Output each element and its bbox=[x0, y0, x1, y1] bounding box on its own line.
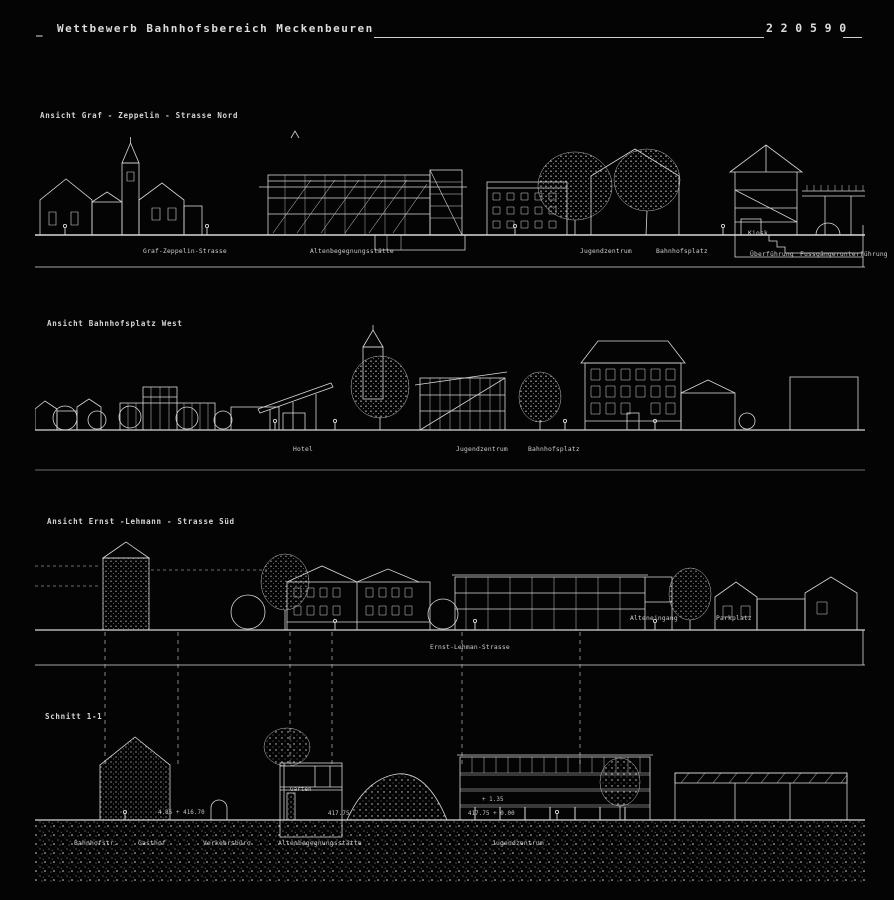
earth-mound bbox=[347, 774, 447, 820]
annotation-unterfuehrung: Fussgängerunterführung bbox=[800, 251, 888, 258]
left-houses bbox=[35, 399, 106, 430]
right-houses bbox=[715, 577, 857, 630]
annex-building bbox=[681, 380, 755, 430]
board-number: 2 2 0 5 9 0 bbox=[766, 21, 847, 35]
panel-label-elevation-west: Ansicht Bahnhofsplatz West bbox=[47, 319, 183, 328]
tree bbox=[264, 728, 310, 766]
long-low-building-section bbox=[675, 773, 847, 820]
tree bbox=[669, 568, 711, 620]
annotation-parkplatz: Parkplatz bbox=[716, 615, 752, 622]
glazed-hall-altenbegegnung bbox=[259, 170, 467, 250]
tree bbox=[351, 356, 409, 418]
title-underline bbox=[374, 37, 764, 38]
tower-section bbox=[100, 737, 170, 820]
elevation-mark: + 1.35 bbox=[482, 797, 504, 803]
section-1-1-drawing bbox=[35, 725, 865, 885]
dome-structure bbox=[816, 223, 840, 235]
hotel-building bbox=[581, 341, 685, 430]
annotation-bahnhofsplatz: Bahnhofsplatz bbox=[656, 248, 708, 255]
annotation-jugendzentrum: Jugendzentrum bbox=[492, 840, 544, 847]
title-prefix: _ bbox=[36, 24, 44, 37]
panel-label-section-1-1: Schnitt 1-1 bbox=[45, 712, 102, 721]
annotation-kiosk: Kiosk bbox=[748, 230, 768, 237]
number-underline bbox=[843, 37, 862, 38]
section-marker-icon bbox=[291, 131, 299, 138]
annotation-jugendzentrum: Jugendzentrum bbox=[580, 248, 632, 255]
elevation-west-drawing bbox=[35, 325, 865, 475]
room-label-garten: Garten bbox=[290, 787, 312, 793]
annotation-ueberfuehrung: Überführung bbox=[750, 251, 794, 258]
glazed-pavilion bbox=[119, 387, 232, 430]
annotation-hotel: Hotel bbox=[293, 446, 313, 453]
reference-dashes bbox=[35, 566, 267, 586]
tree-outline bbox=[231, 595, 265, 629]
annotation-jugendzentrum: Jugendzentrum bbox=[456, 446, 508, 453]
annotation-altenbegegnung: Altenbegegnungsstätte bbox=[310, 248, 394, 255]
tree bbox=[600, 758, 640, 806]
stippled-ground bbox=[35, 820, 865, 882]
canopy-structure bbox=[231, 383, 333, 430]
signal-tower-and-bridge bbox=[730, 145, 865, 235]
elevation-mark: 417.75 + 0.00 bbox=[468, 811, 515, 817]
tree-outline bbox=[428, 599, 458, 629]
elevation-mark: 4.85 + 416.70 bbox=[158, 810, 205, 816]
stippled-tower bbox=[103, 542, 149, 630]
church-buildings bbox=[40, 137, 202, 235]
annotation-ernst-lehman-strasse: Ernst-Lehman-Strasse bbox=[430, 644, 510, 651]
annotation-gasthof: Gasthof bbox=[138, 840, 166, 847]
annotation-bahnhofsplatz: Bahnhofsplatz bbox=[528, 446, 580, 453]
annotation-alteneingang: Alteneingang bbox=[630, 615, 678, 622]
arched-doorway bbox=[211, 800, 227, 820]
site-outline bbox=[790, 377, 858, 430]
glazed-hall-jugendzentrum bbox=[415, 372, 507, 430]
trees bbox=[538, 149, 680, 220]
panel-label-elevation-north: Ansicht Graf - Zeppelin - Strasse Nord bbox=[40, 111, 238, 120]
elevation-mark: 417.75 bbox=[328, 811, 350, 817]
annotation-altenbegegnung: Altenbegegnungsstätte bbox=[278, 840, 362, 847]
board-title: Wettbewerb Bahnhofsbereich Meckenbeuren bbox=[57, 22, 374, 35]
annotation-street: Graf-Zeppelin-Strasse bbox=[143, 248, 227, 255]
annotation-bahnhofstrasse: Bahnhofstr. bbox=[74, 840, 118, 847]
annotation-verkehrsbuero: Verkehrsbüro bbox=[203, 840, 251, 847]
tree bbox=[519, 372, 561, 422]
people-figures bbox=[63, 224, 724, 235]
competition-board: _ Wettbewerb Bahnhofsbereich Meckenbeure… bbox=[0, 0, 894, 900]
panel-label-elevation-south: Ansicht Ernst -Lehmann - Strasse Süd bbox=[47, 517, 235, 526]
